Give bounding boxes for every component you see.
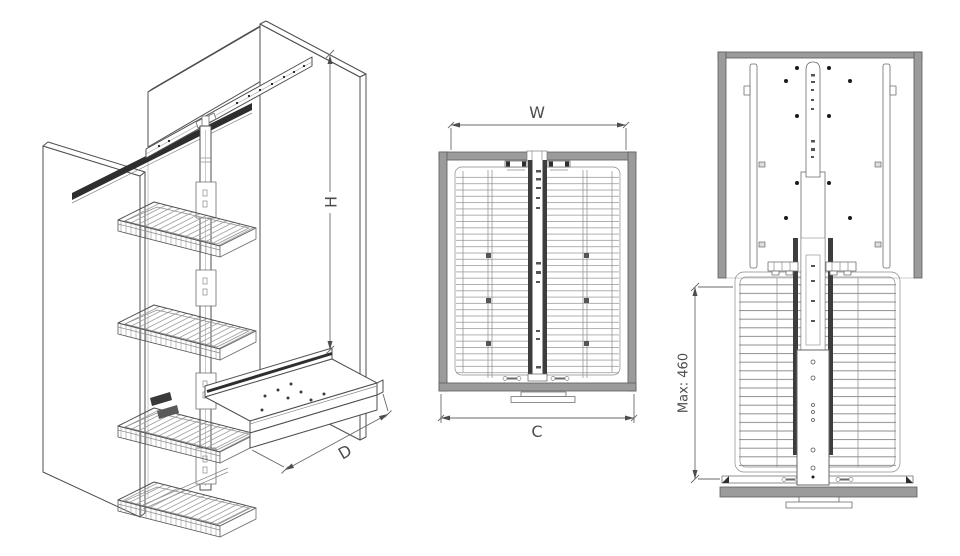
center-rail [527, 151, 547, 381]
front-view: W C [438, 103, 637, 441]
dimension-max-extension: Max: 460 [677, 283, 734, 483]
base-plate-bar [720, 487, 917, 497]
dimension-h-label: H [322, 196, 341, 208]
dimension-max-label: Max: 460 [677, 353, 692, 413]
front-foot-bracket [511, 392, 575, 403]
post-bracket [196, 270, 216, 306]
dimension-w-label: W [529, 103, 545, 122]
side-foot-bracket [786, 497, 852, 508]
dimension-w: W [448, 103, 629, 150]
dimension-c-label: C [531, 422, 542, 441]
technical-drawing-canvas: H D [0, 0, 960, 556]
wire-basket-4 [118, 482, 256, 537]
rail-cover-plate [797, 350, 829, 485]
pullout-larder-drawing: H D [0, 0, 960, 556]
slide-hardware [150, 392, 172, 406]
dimension-d-label: D [335, 441, 355, 464]
post-bracket [196, 182, 216, 218]
side-view: Max: 460 [677, 52, 923, 508]
isometric-view: H D [43, 21, 392, 537]
